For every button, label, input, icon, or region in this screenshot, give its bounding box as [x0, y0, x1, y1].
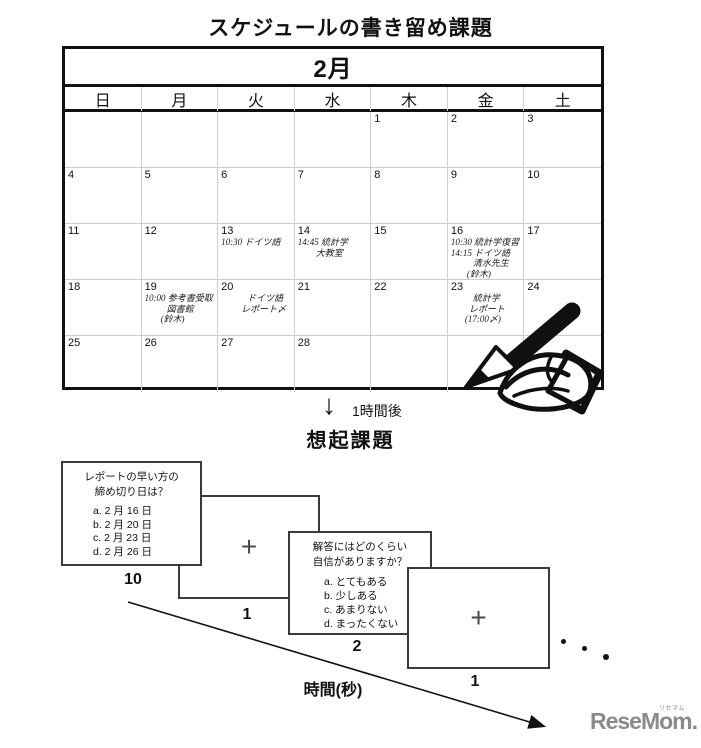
- calendar-cell: [65, 112, 142, 168]
- down-arrow-icon: ↓: [322, 390, 336, 420]
- recall-task-title: 想起課題: [0, 424, 701, 453]
- calendar-cell: 6: [218, 168, 295, 224]
- day-number: 13: [221, 225, 294, 237]
- calendar-cell: 21: [295, 280, 372, 336]
- question-line: 解答にはどのくらい: [290, 540, 430, 555]
- calendar-cell-day13: 13 10:30 ドイツ語: [218, 224, 295, 280]
- calendar-cell: 26: [142, 336, 219, 392]
- calendar-cell: 25: [65, 336, 142, 392]
- weekday-wed: 水: [295, 87, 372, 111]
- calendar-cell: 8: [371, 168, 448, 224]
- weekday-fri: 金: [448, 87, 525, 111]
- schedule-entry: (鈴木): [451, 269, 524, 280]
- calendar-cell: [371, 336, 448, 392]
- calendar-cell: [142, 112, 219, 168]
- day-number: 17: [527, 225, 601, 237]
- ellipsis-dot: [582, 646, 587, 651]
- interval-label: 1時間後: [352, 401, 402, 421]
- day-number: 11: [68, 225, 141, 237]
- calendar-cell: 9: [448, 168, 525, 224]
- day-number: 9: [451, 169, 524, 181]
- weekday-tue: 火: [218, 87, 295, 111]
- option-a: a. 2 月 16 日: [63, 505, 200, 519]
- calendar-cell: 10: [524, 168, 601, 224]
- calendar-cell: 2: [448, 112, 525, 168]
- day-number: 16: [451, 225, 524, 237]
- day-number: 8: [374, 169, 447, 181]
- day-number: 26: [145, 337, 218, 349]
- day-number: 22: [374, 281, 447, 293]
- day-number: 1: [374, 113, 447, 125]
- calendar-cell: 27: [218, 336, 295, 392]
- calendar-cell: 4: [65, 168, 142, 224]
- day-number: 27: [221, 337, 294, 349]
- calendar-cell: 3: [524, 112, 601, 168]
- weekday-sat: 土: [524, 87, 601, 111]
- calendar-cell: 17: [524, 224, 601, 280]
- schedule-entry: 14:15 ドイツ語: [451, 248, 524, 259]
- fixation-cross: +: [470, 604, 486, 632]
- day-number: 25: [68, 337, 141, 349]
- day-number: 5: [145, 169, 218, 181]
- calendar-cell: 12: [142, 224, 219, 280]
- calendar-cell: [295, 112, 372, 168]
- question-line: レポートの早い方の: [63, 470, 200, 485]
- day-number: 12: [145, 225, 218, 237]
- day-number: 7: [298, 169, 371, 181]
- calendar-cell: 18: [65, 280, 142, 336]
- calendar-cell: [218, 112, 295, 168]
- schedule-entry: 10:00 参考書受取: [145, 293, 218, 304]
- calendar-cell: 5: [142, 168, 219, 224]
- page-title: スケジュールの書き留め課題: [0, 12, 701, 42]
- day-number: 6: [221, 169, 294, 181]
- calendar-cell-day19: 19 10:00 参考書受取 図書館 (鈴木): [142, 280, 219, 336]
- calendar-cell: 28: [295, 336, 372, 392]
- day-number: 3: [527, 113, 601, 125]
- day-number: 23: [451, 281, 524, 293]
- resemom-logo: リセマム ReseMom.: [583, 702, 697, 742]
- day-number: 4: [68, 169, 141, 181]
- day-number: 24: [527, 281, 601, 293]
- calendar-cell: 7: [295, 168, 372, 224]
- fixation-cross: +: [241, 533, 257, 561]
- weekday-mon: 月: [142, 87, 219, 111]
- schedule-entry: (鈴木): [145, 314, 218, 325]
- ellipsis-dot: [603, 654, 609, 660]
- calendar-cell-day14: 14 14:45 統計学 大教室: [295, 224, 372, 280]
- schedule-entry: 10:30 統計学復習: [451, 237, 524, 248]
- option-c: c. 2 月 23 日: [63, 532, 200, 546]
- stimulus-card-question-1: レポートの早い方の 締め切り日は？ a. 2 月 16 日 b. 2 月 20 …: [61, 461, 202, 566]
- question-line: 締め切り日は？: [63, 485, 200, 500]
- day-number: 18: [68, 281, 141, 293]
- day-number: 10: [527, 169, 601, 181]
- option-b: b. 2 月 20 日: [63, 519, 200, 533]
- day-number: 19: [145, 281, 218, 293]
- stimulus-card-fixation-2: +: [407, 567, 550, 669]
- ellipsis-dot: [561, 639, 566, 644]
- weekday-sun: 日: [65, 87, 142, 111]
- calendar-cell: 1: [371, 112, 448, 168]
- calendar-cell-day20: 20 ドイツ語 レポート〆: [218, 280, 295, 336]
- schedule-entry: レポート〆: [221, 304, 294, 315]
- day-number: 28: [298, 337, 371, 349]
- calendar-month-label: 2月: [65, 49, 601, 87]
- calendar-cell: 11: [65, 224, 142, 280]
- schedule-entry: 清水先生: [451, 258, 524, 269]
- logo-text: ReseMom.: [583, 708, 697, 734]
- schedule-entry: 14:45 統計学: [298, 237, 371, 248]
- calendar-cell: 22: [371, 280, 448, 336]
- option-d: d. 2 月 26 日: [63, 546, 200, 560]
- schedule-entry: 図書館: [145, 304, 218, 315]
- schedule-entry: 大教室: [298, 248, 371, 259]
- day-number: 21: [298, 281, 371, 293]
- schedule-entry: 10:30 ドイツ語: [221, 237, 294, 248]
- figure-canvas: スケジュールの書き留め課題 2月 日 月 火 水 木 金 土 1 2 3 4 5…: [0, 0, 701, 748]
- day-number: 15: [374, 225, 447, 237]
- option-list: a. 2 月 16 日 b. 2 月 20 日 c. 2 月 23 日 d. 2…: [63, 505, 200, 559]
- calendar-cell-day16: 16 10:30 統計学復習 14:15 ドイツ語 清水先生 (鈴木): [448, 224, 525, 280]
- day-number: 20: [221, 281, 294, 293]
- calendar-weekday-header: 日 月 火 水 木 金 土: [65, 87, 601, 112]
- hand-writing-pen-icon: [450, 295, 610, 417]
- schedule-entry: ドイツ語: [221, 293, 294, 304]
- day-number: 2: [451, 113, 524, 125]
- duration-label: 10: [124, 571, 142, 589]
- calendar-cell: 15: [371, 224, 448, 280]
- time-axis-label: 時間(秒): [288, 676, 378, 700]
- weekday-thu: 木: [371, 87, 448, 111]
- day-number: 14: [298, 225, 371, 237]
